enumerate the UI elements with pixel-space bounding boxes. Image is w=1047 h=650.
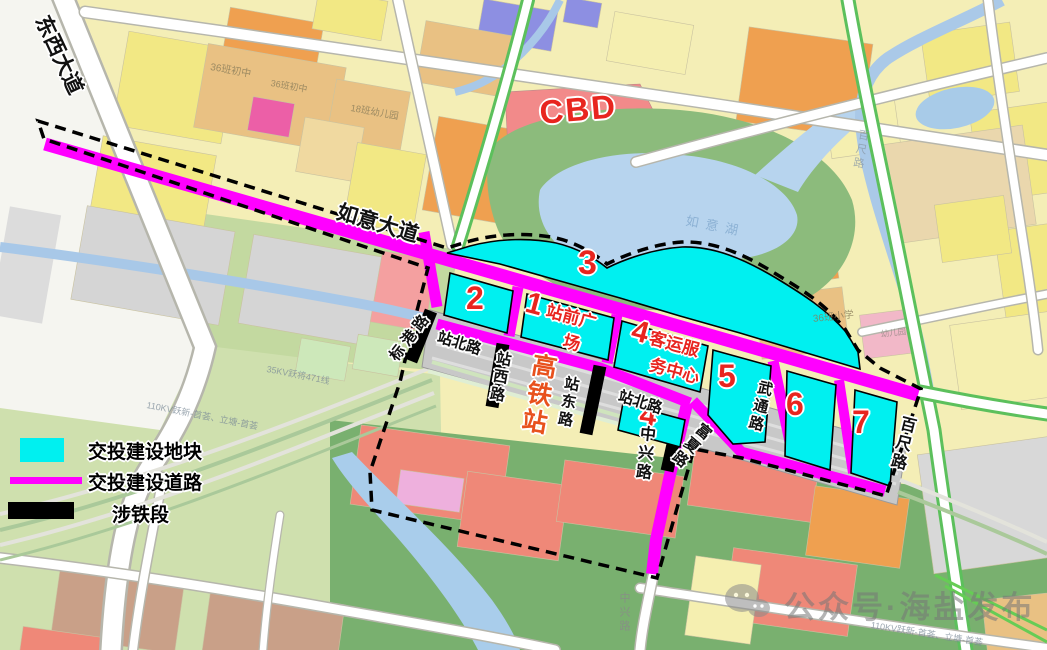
parcel-2-number: 2	[466, 282, 484, 314]
legend-swatch-rail	[8, 502, 74, 519]
watermark: 公众号·海盐发布	[722, 580, 1035, 629]
legend-label-rail: 涉铁段	[112, 500, 169, 527]
legend-swatch-road	[10, 477, 82, 484]
cbd-label: CBD	[538, 87, 619, 132]
planning-map: 东西大道 如意大道 CBD 如意湖 3 2 4 5 6 7 1 站前广 场 4 …	[0, 0, 1047, 650]
watermark-text: 公众号·海盐发布	[784, 582, 1035, 627]
legend-label-parcel: 交投建设地块	[88, 437, 202, 464]
legend-label-road: 交投建设道路	[88, 468, 202, 495]
road-label-zhongxing-south: 中兴路	[616, 592, 632, 634]
parcel-6-number: 6	[786, 388, 804, 420]
legend-swatch-parcel	[20, 438, 64, 462]
parcel-5-number: 5	[718, 360, 736, 392]
parcel-3-number: 3	[578, 246, 597, 280]
wechat-icon	[722, 580, 774, 629]
parcel-7-number: 7	[852, 406, 870, 438]
